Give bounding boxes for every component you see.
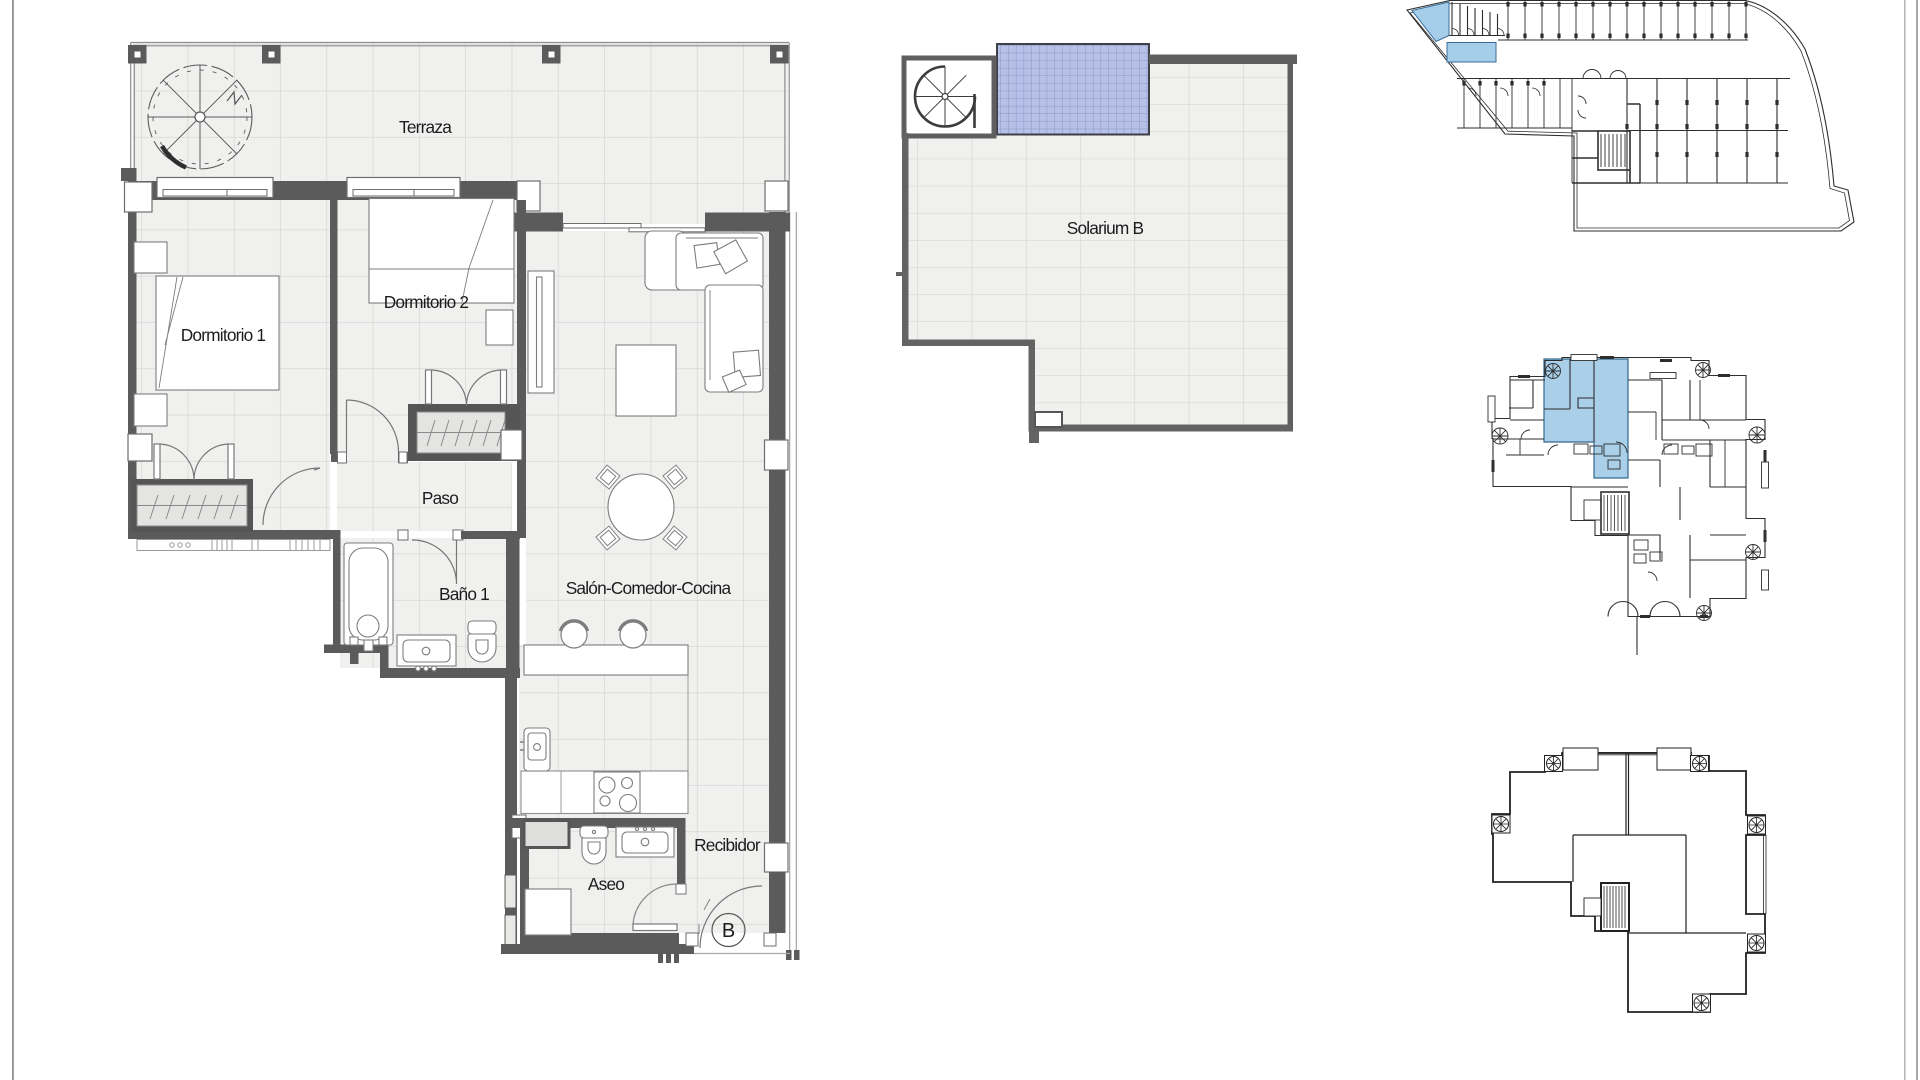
svg-text:Aseo: Aseo	[588, 874, 624, 894]
svg-text:B: B	[722, 920, 735, 942]
svg-text:Solarium B: Solarium B	[1067, 218, 1144, 238]
svg-text:Dormitorio 1: Dormitorio 1	[181, 325, 266, 345]
svg-text:Salón-Comedor-Cocina: Salón-Comedor-Cocina	[566, 578, 732, 598]
svg-text:Dormitorio 2: Dormitorio 2	[384, 292, 469, 312]
svg-text:Paso: Paso	[422, 488, 458, 508]
svg-text:Recibidor: Recibidor	[694, 835, 761, 855]
svg-text:Terraza: Terraza	[399, 117, 452, 137]
svg-text:Baño 1: Baño 1	[439, 584, 489, 604]
